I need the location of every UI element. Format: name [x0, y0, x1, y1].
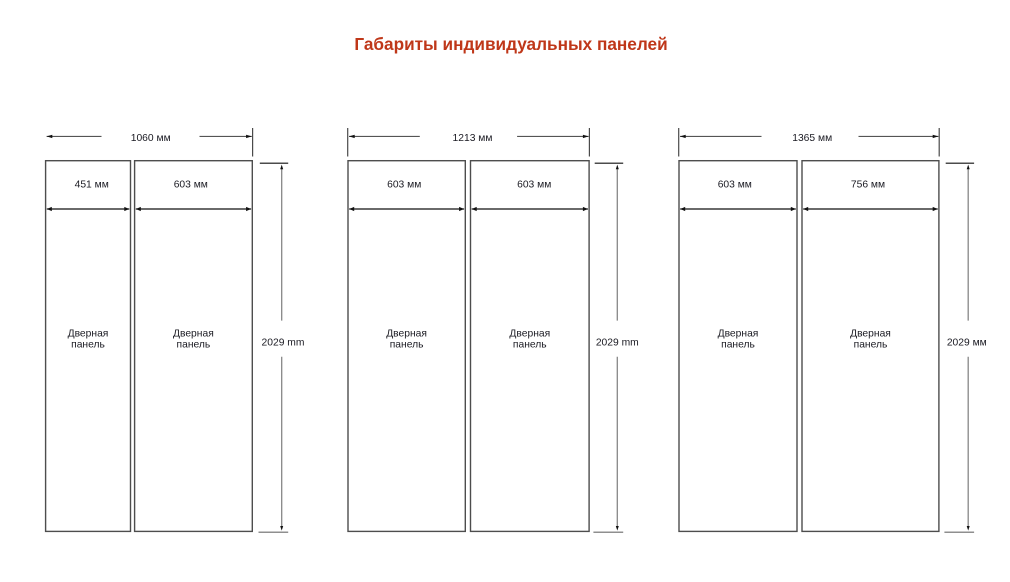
svg-text:2029 мм: 2029 мм: [947, 338, 987, 349]
svg-text:Дверная: Дверная: [173, 329, 214, 340]
svg-text:2029 mm: 2029 mm: [596, 338, 639, 349]
svg-text:Дверная: Дверная: [68, 329, 109, 340]
svg-text:панель: панель: [71, 340, 105, 351]
svg-text:Габариты индивидуальных панеле: Габариты индивидуальных панелей: [354, 34, 667, 54]
svg-text:Дверная: Дверная: [509, 329, 550, 340]
svg-text:панель: панель: [513, 340, 547, 351]
svg-text:603 мм: 603 мм: [174, 180, 208, 191]
svg-text:2029 mm: 2029 mm: [262, 338, 305, 349]
svg-text:1365 мм: 1365 мм: [792, 133, 832, 144]
svg-text:панель: панель: [854, 340, 888, 351]
svg-text:603 мм: 603 мм: [718, 180, 752, 191]
svg-text:панель: панель: [721, 340, 755, 351]
svg-text:1060 мм: 1060 мм: [131, 133, 171, 144]
svg-text:панель: панель: [390, 340, 424, 351]
svg-text:Дверная: Дверная: [386, 329, 427, 340]
svg-text:Дверная: Дверная: [850, 329, 891, 340]
svg-text:1213 мм: 1213 мм: [453, 133, 493, 144]
svg-text:603 мм: 603 мм: [387, 180, 421, 191]
svg-text:панель: панель: [177, 340, 211, 351]
svg-text:Дверная: Дверная: [718, 329, 759, 340]
svg-text:603 мм: 603 мм: [517, 180, 551, 191]
svg-text:756 мм: 756 мм: [851, 180, 885, 191]
svg-text:451 мм: 451 мм: [75, 180, 109, 191]
